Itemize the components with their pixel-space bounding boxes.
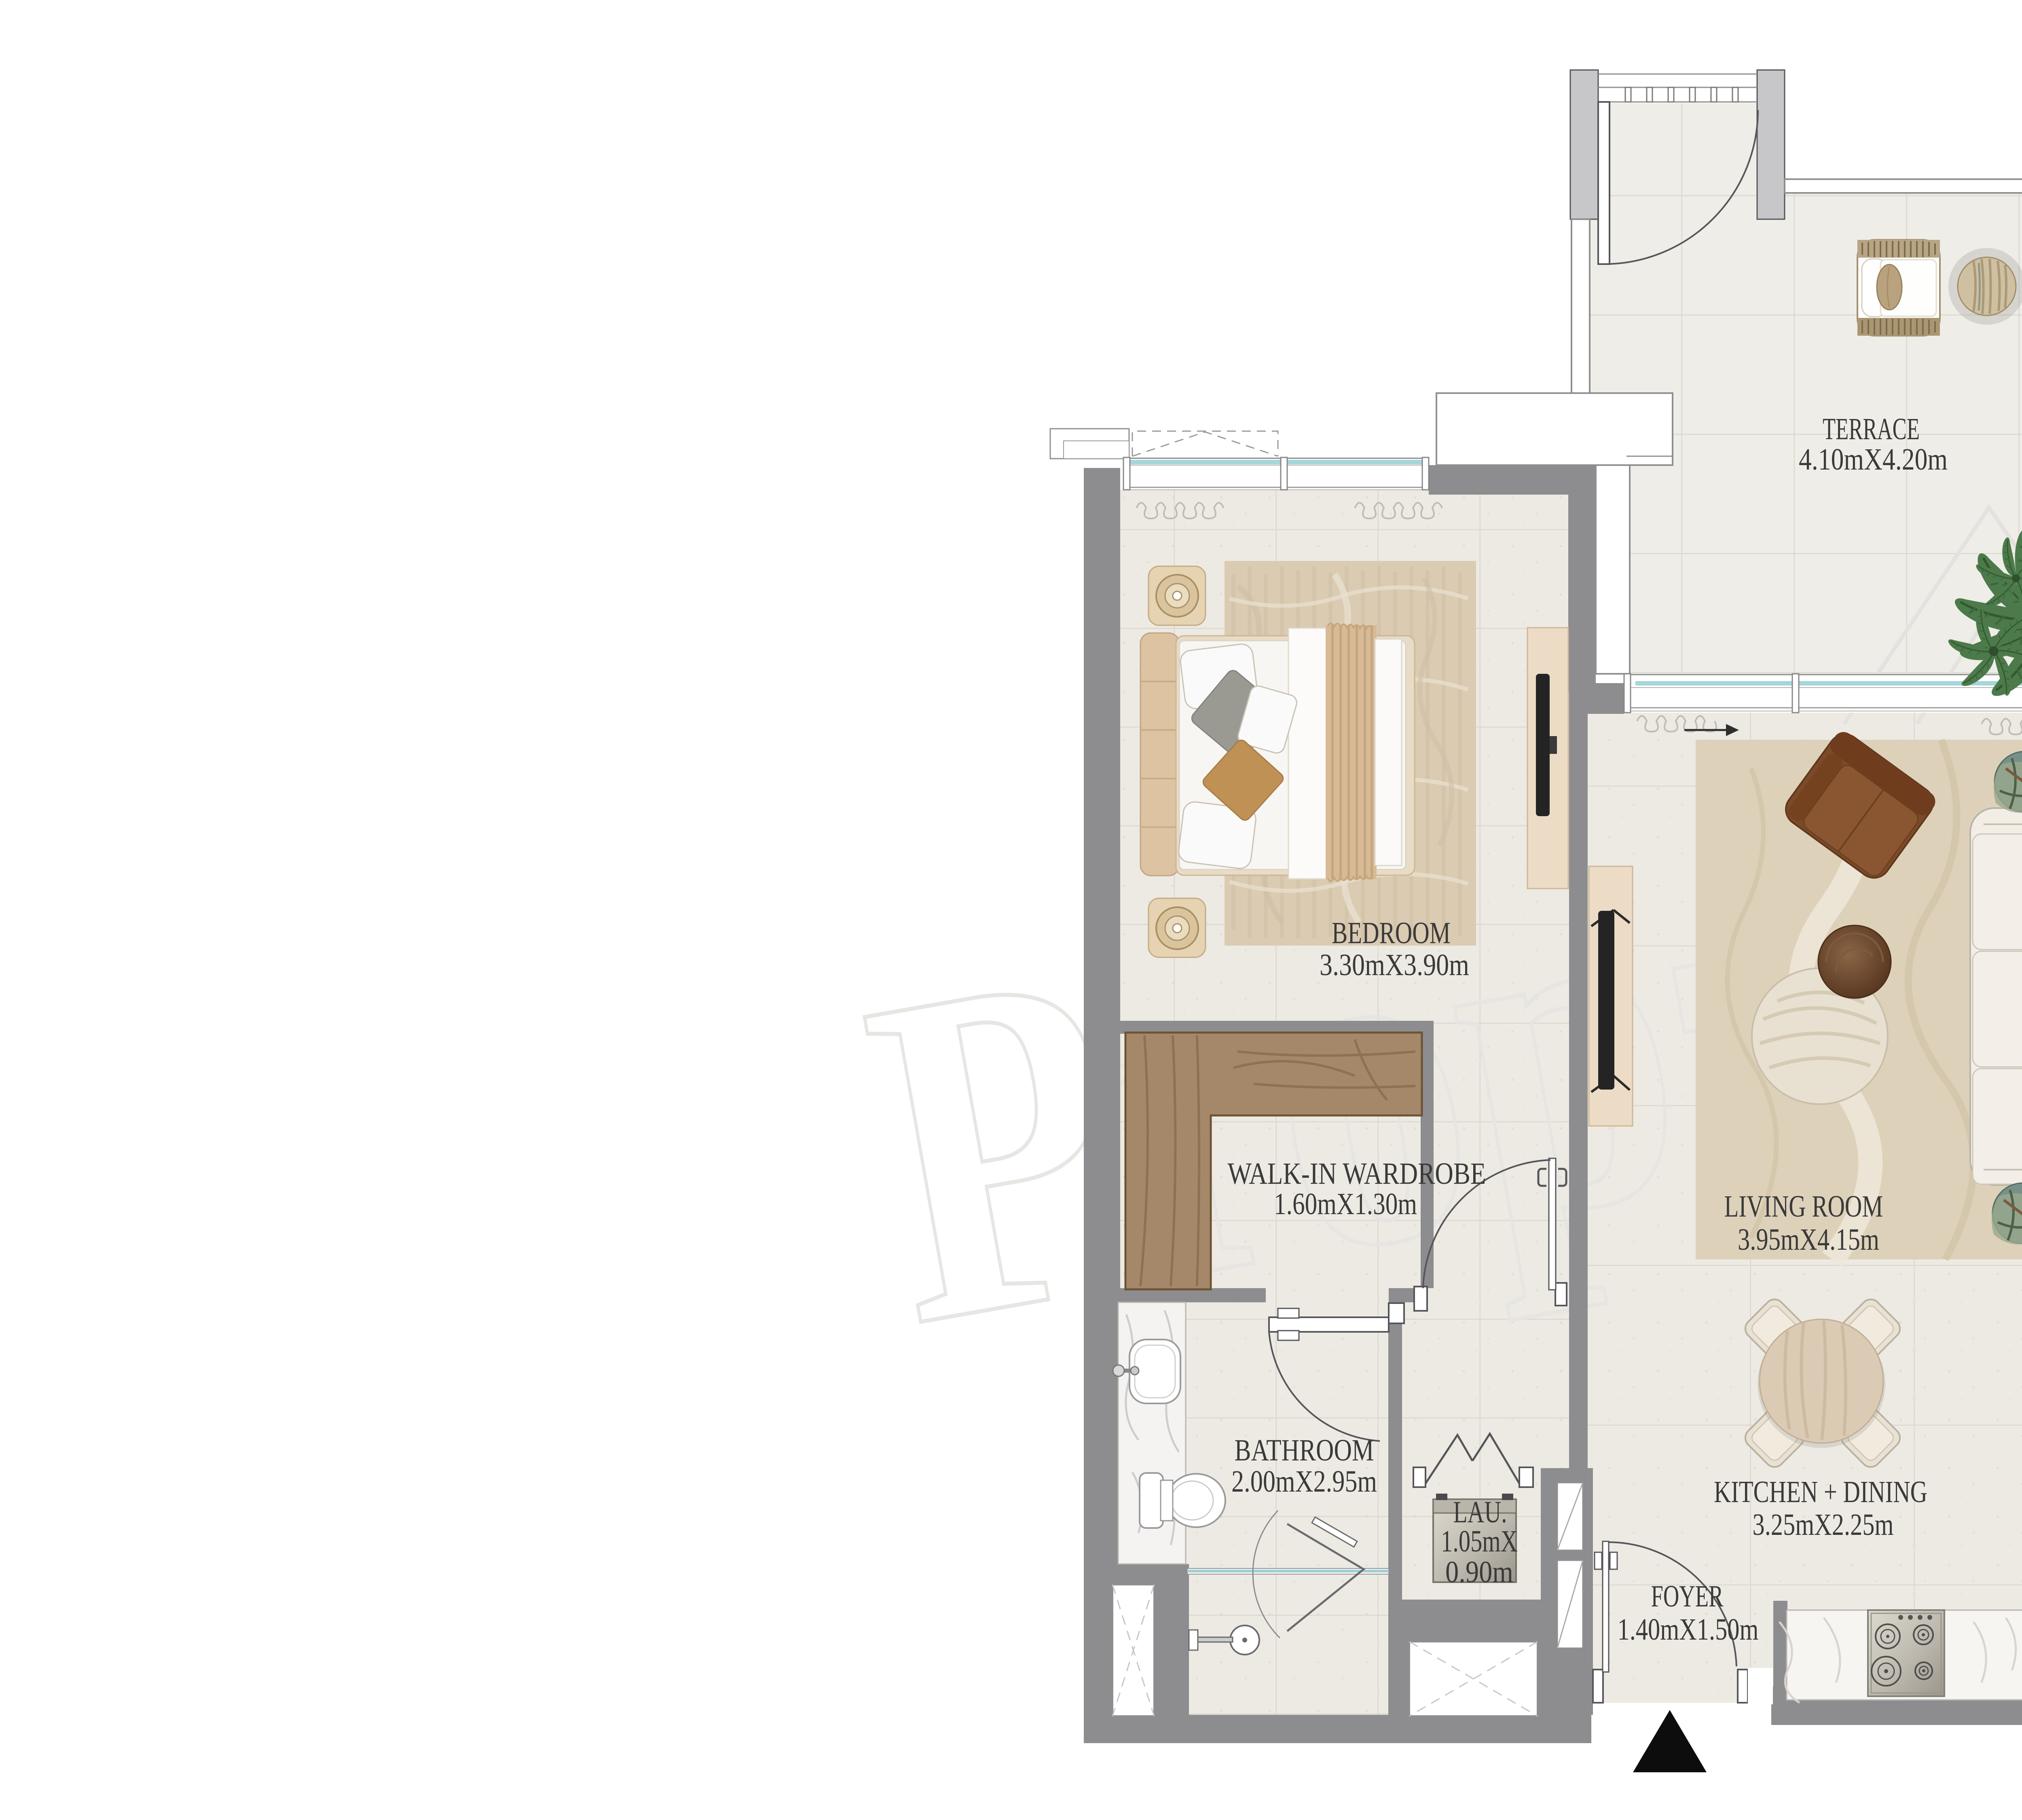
svg-text:3.30mX3.90m: 3.30mX3.90m [1320,948,1469,982]
svg-text:2.00mX2.95m: 2.00mX2.95m [1231,1464,1377,1498]
svg-text:3.95mX4.15m: 3.95mX4.15m [1738,1223,1879,1257]
svg-text:WALK-IN WARDROBE: WALK-IN WARDROBE [1228,1157,1486,1191]
svg-text:4.10mX4.20m: 4.10mX4.20m [1799,442,1948,476]
svg-text:1.40mX1.50m: 1.40mX1.50m [1618,1613,1759,1646]
svg-text:BEDROOM: BEDROOM [1332,916,1451,950]
svg-text:LIVING ROOM: LIVING ROOM [1724,1189,1883,1223]
svg-text:TERRACE: TERRACE [1823,412,1920,446]
svg-text:BATHROOM: BATHROOM [1235,1433,1374,1467]
svg-text:1.60mX1.30m: 1.60mX1.30m [1274,1187,1417,1221]
svg-text:3.25mX2.25m: 3.25mX2.25m [1753,1508,1894,1542]
svg-text:1.05mX: 1.05mX [1441,1524,1518,1558]
svg-text:0.90m: 0.90m [1445,1555,1513,1589]
svg-text:FOYER: FOYER [1651,1579,1724,1613]
svg-text:KITCHEN + DINING: KITCHEN + DINING [1714,1475,1927,1509]
